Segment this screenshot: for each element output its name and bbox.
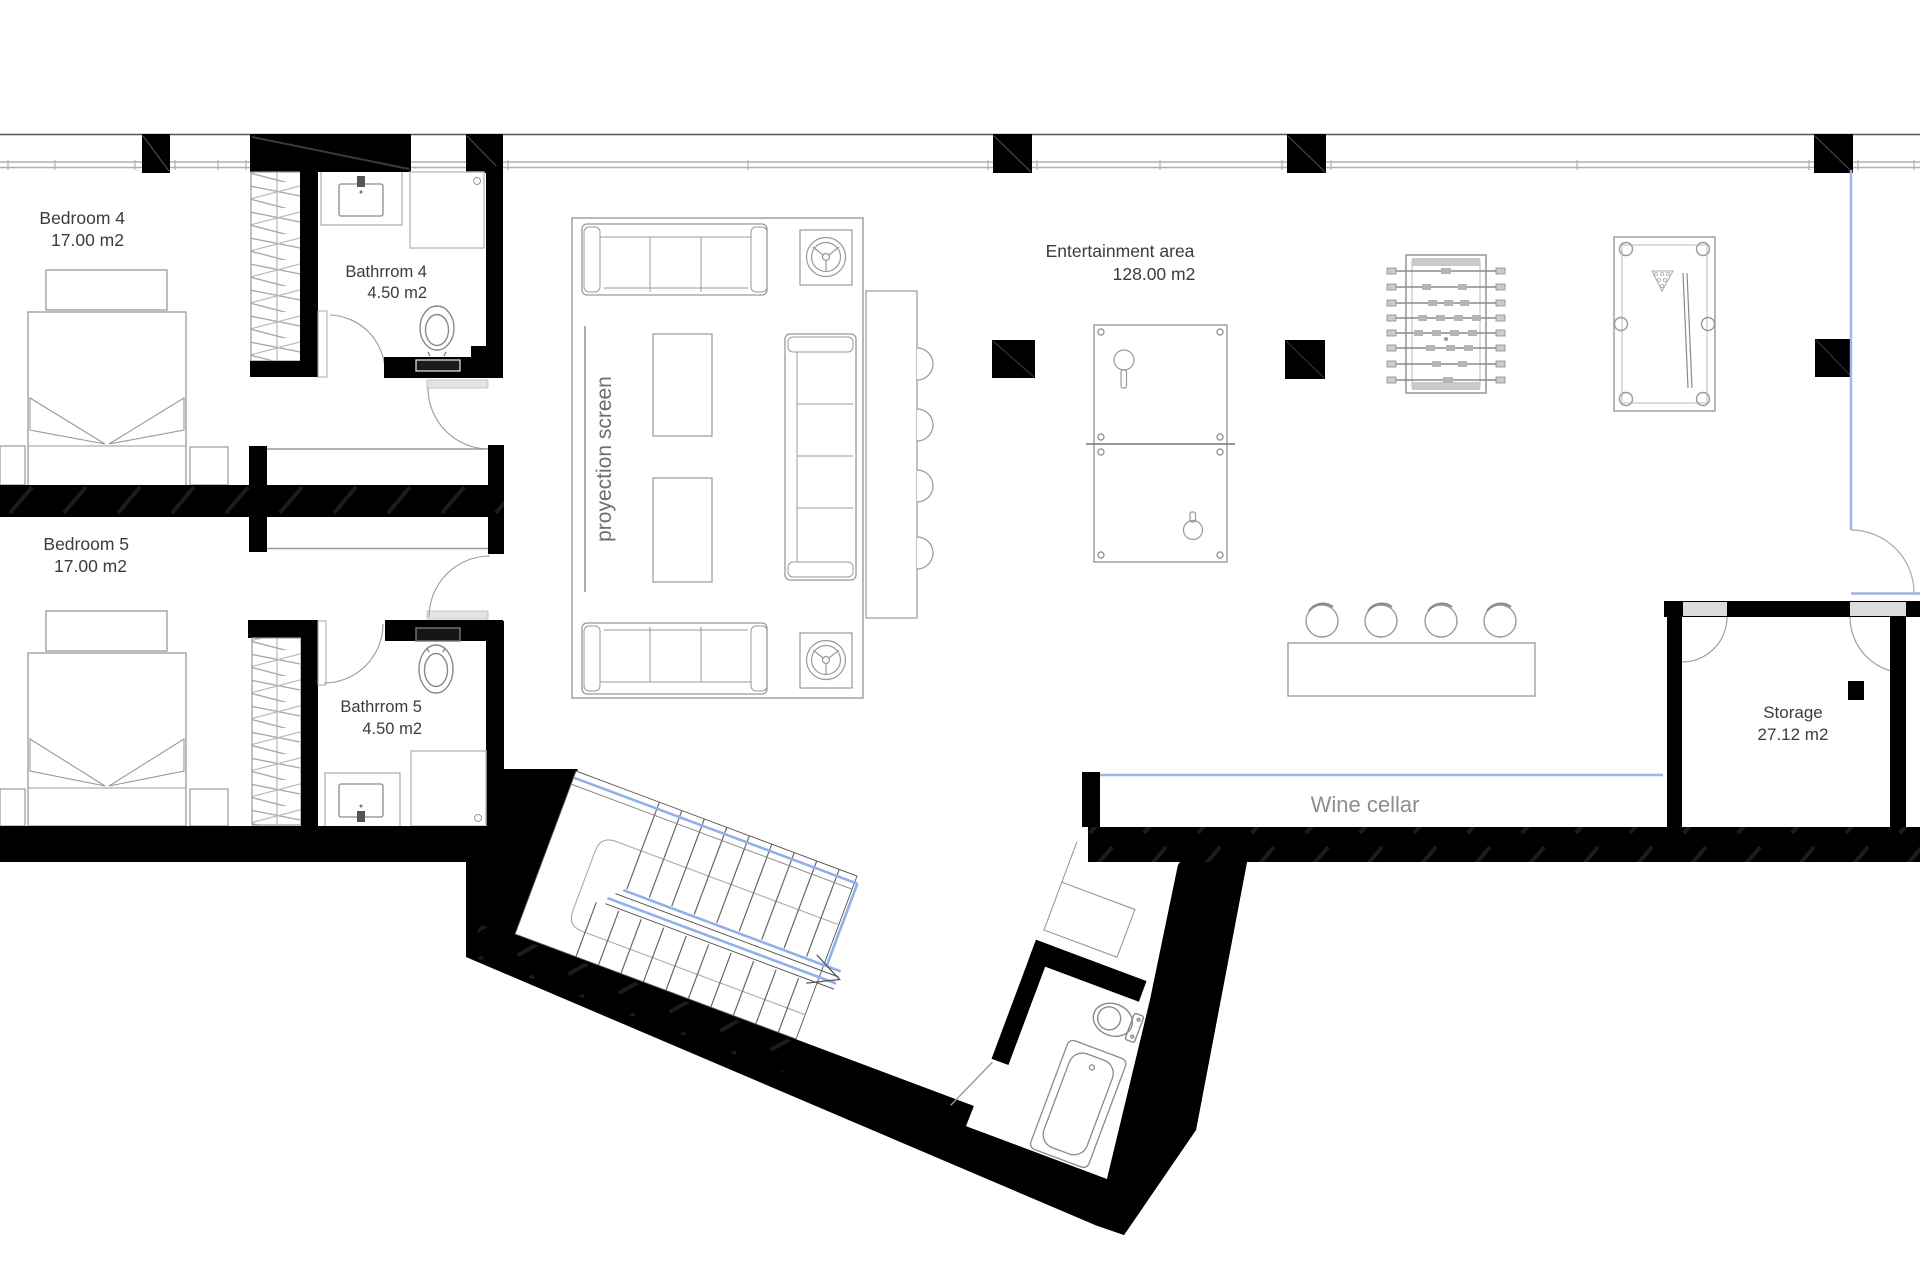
- svg-text:Bathrrom 5: Bathrrom 5: [340, 698, 422, 716]
- svg-text:27.12 m2: 27.12 m2: [1758, 725, 1829, 744]
- svg-text:Bathrrom 4: Bathrrom 4: [345, 263, 427, 281]
- svg-text:128.00 m2: 128.00 m2: [1113, 264, 1196, 284]
- svg-text:Wine cellar: Wine cellar: [1311, 792, 1420, 817]
- svg-text:4.50 m2: 4.50 m2: [362, 720, 422, 738]
- svg-text:proyection screen: proyection screen: [593, 376, 616, 542]
- svg-text:Bedroom 4: Bedroom 4: [39, 208, 125, 228]
- svg-text:Storage: Storage: [1763, 703, 1823, 722]
- svg-text:Bedroom 5: Bedroom 5: [43, 534, 129, 554]
- svg-text:Entertainment area: Entertainment area: [1046, 241, 1195, 261]
- svg-text:17.00 m2: 17.00 m2: [51, 230, 124, 250]
- svg-text:17.00 m2: 17.00 m2: [54, 556, 127, 576]
- svg-text:4.50 m2: 4.50 m2: [367, 284, 427, 302]
